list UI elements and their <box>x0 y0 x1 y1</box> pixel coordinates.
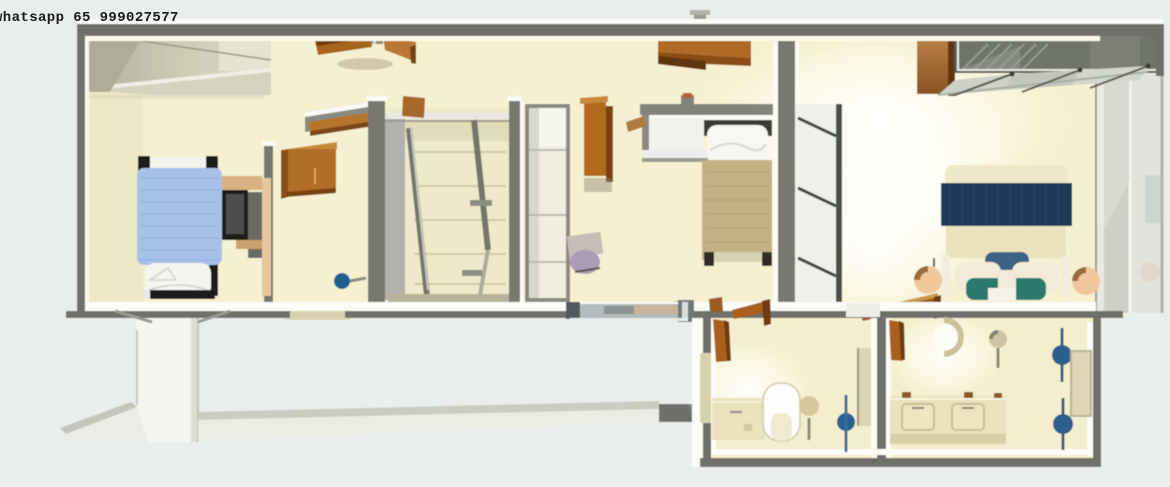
svg-text:whatsapp 65 999027577: whatsapp 65 999027577 <box>0 10 179 26</box>
